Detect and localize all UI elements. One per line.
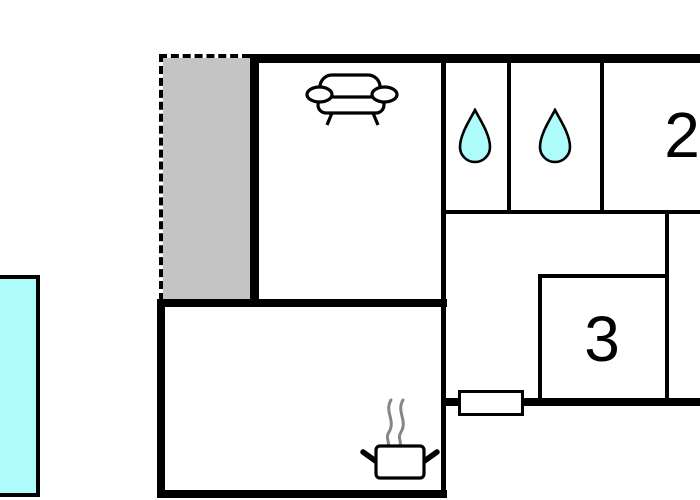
wall-bedroom3-left	[538, 274, 542, 402]
wall-corridor	[665, 210, 669, 402]
wall-bathroom-divider-1	[507, 63, 511, 210]
outer-wall-kitchen-left	[157, 299, 165, 498]
sofa-icon	[300, 66, 400, 128]
steam-line	[399, 400, 403, 445]
door-window	[458, 390, 524, 416]
outer-wall-living-left	[250, 54, 259, 307]
floor-plan: 2 3	[0, 0, 700, 500]
water-drop-icon	[538, 108, 572, 165]
steam-line	[387, 400, 391, 445]
wall-bathroom-divider-2	[600, 63, 604, 210]
room-2-label: 2	[664, 103, 700, 167]
outer-wall-top	[250, 54, 700, 63]
outer-wall-kitchen-bottom	[157, 490, 447, 498]
wall-bedroom3-top	[538, 274, 669, 278]
water-drop-icon	[458, 108, 492, 165]
wall-kitchen-top	[157, 299, 447, 307]
terrace-area	[159, 54, 250, 301]
cooking-pot-icon	[358, 398, 442, 482]
wall-hall-top	[441, 210, 700, 214]
room-3-label: 3	[584, 307, 620, 371]
pool-area	[0, 275, 40, 497]
